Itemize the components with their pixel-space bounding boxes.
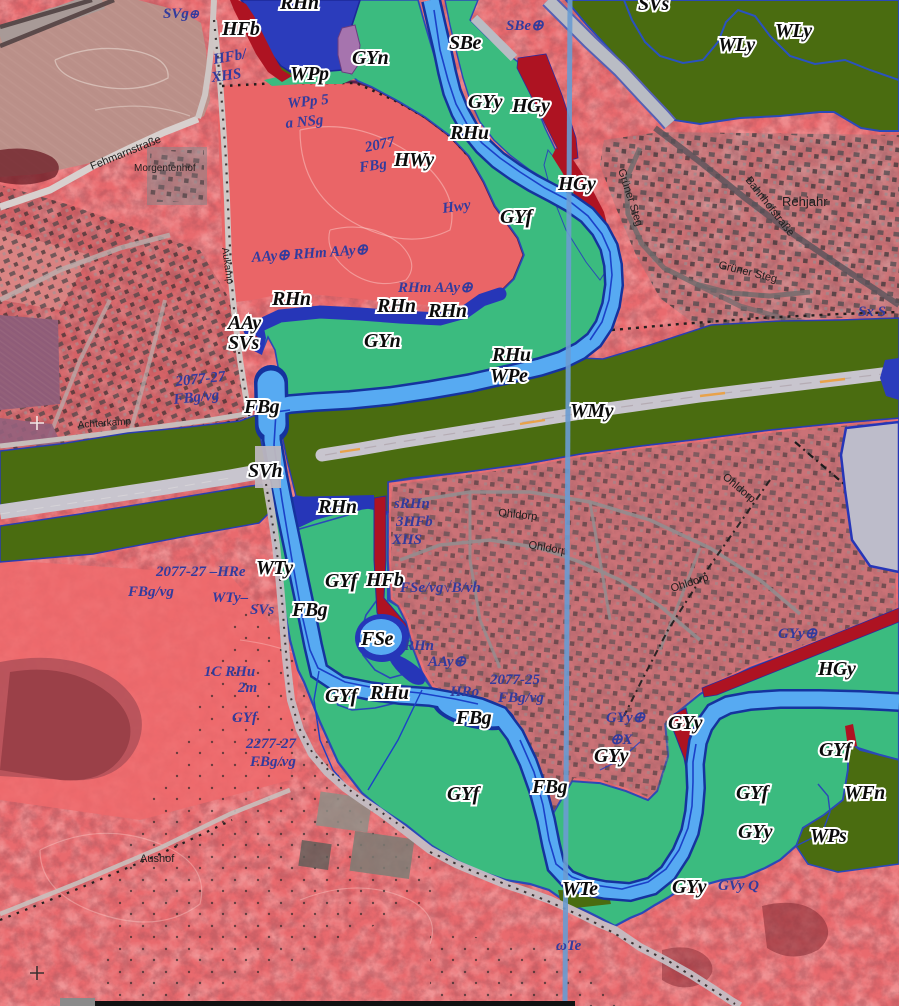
svg-text:WPs: WPs <box>810 825 847 847</box>
svg-text:Rehjahr: Rehjahr <box>782 194 828 209</box>
svg-text:WMy: WMy <box>570 400 614 422</box>
svg-text:RHn: RHn <box>403 638 434 654</box>
svg-text:GYy⊕: GYy⊕ <box>606 710 646 726</box>
svg-text:GYf: GYf <box>500 206 535 228</box>
svg-text:GYf: GYf <box>232 710 259 726</box>
svg-text:GYf: GYf <box>325 685 360 707</box>
svg-text:HGy: HGy <box>511 95 550 117</box>
svg-text:GYy: GYy <box>468 91 503 113</box>
svg-text:GYy⊕: GYy⊕ <box>778 626 818 642</box>
svg-text:HFb: HFb <box>365 569 404 591</box>
svg-text:SBe: SBe <box>449 32 481 54</box>
svg-text:SVg⊕: SVg⊕ <box>163 6 200 22</box>
svg-text:FSe: FSe <box>360 628 393 650</box>
svg-text:HWy: HWy <box>393 149 434 171</box>
svg-text:GYy: GYy <box>594 745 629 767</box>
svg-text:WTe: WTe <box>562 878 598 900</box>
svg-text:RHn: RHn <box>317 496 357 518</box>
svg-text:GYf: GYf <box>325 570 360 592</box>
svg-text:1C RHu: 1C RHu <box>204 664 255 680</box>
svg-text:sRHn: sRHn <box>393 496 430 512</box>
svg-text:HFb: HFb <box>221 18 260 40</box>
svg-text:RHm AAy⊕: RHm AAy⊕ <box>397 280 473 296</box>
svg-text:2077-27 ‒HRe: 2077-27 ‒HRe <box>155 564 246 580</box>
svg-text:SVs: SVs <box>228 332 259 354</box>
svg-text:RHn: RHn <box>279 0 319 14</box>
svg-text:⊕X: ⊕X <box>610 732 634 748</box>
svg-text:HGy: HGy <box>817 658 856 680</box>
svg-text:WFn: WFn <box>844 782 885 804</box>
svg-text:WPe: WPe <box>490 365 528 387</box>
svg-text:FBg/vg: FBg/vg <box>497 690 544 706</box>
svg-text:3HFb: 3HFb <box>395 514 433 530</box>
svg-text:ωTe: ωTe <box>556 938 582 954</box>
svg-text:SVh: SVh <box>248 460 282 482</box>
svg-text:2m: 2m <box>237 680 257 696</box>
svg-text:RHn: RHn <box>376 295 416 317</box>
svg-text:FSe/vg√B/vh: FSe/vg√B/vh <box>399 580 481 596</box>
svg-text:SVs: SVs <box>250 602 274 618</box>
svg-text:2077-25: 2077-25 <box>489 672 540 688</box>
svg-text:FBg: FBg <box>455 707 492 729</box>
svg-text:Sx S: Sx S <box>858 304 886 320</box>
svg-text:WPp: WPp <box>290 63 329 85</box>
svg-text:FBg: FBg <box>243 396 280 418</box>
svg-text:XHS: XHS <box>391 532 422 548</box>
svg-text:HRo: HRo <box>449 684 479 700</box>
svg-text:AAy⊕: AAy⊕ <box>427 654 467 670</box>
svg-text:FBg/vg: FBg/vg <box>249 754 296 770</box>
svg-text:Aushof: Aushof <box>140 853 175 865</box>
svg-text:GYf: GYf <box>736 782 771 804</box>
svg-text:FBg: FBg <box>531 776 568 798</box>
svg-text:FBg: FBg <box>291 599 328 621</box>
svg-text:GYn: GYn <box>352 47 389 69</box>
svg-text:WLy: WLy <box>718 34 755 56</box>
svg-text:RHu: RHu <box>449 122 489 144</box>
svg-text:HGy: HGy <box>557 173 596 195</box>
svg-text:AAy: AAy <box>226 312 261 334</box>
svg-text:GYf: GYf <box>447 783 482 805</box>
svg-text:FBg/vg: FBg/vg <box>127 584 174 600</box>
svg-text:WTy‒: WTy‒ <box>212 590 249 606</box>
svg-text:GYy: GYy <box>672 876 707 898</box>
svg-text:2277-27: 2277-27 <box>245 736 296 752</box>
svg-text:RHn: RHn <box>427 300 467 322</box>
svg-text:RHu: RHu <box>491 344 531 366</box>
svg-text:WLy: WLy <box>775 20 812 42</box>
svg-text:GVy Q: GVy Q <box>718 878 759 894</box>
svg-text:SBe⊕: SBe⊕ <box>506 18 544 34</box>
svg-text:RHu: RHu <box>369 682 409 704</box>
svg-text:WTy: WTy <box>256 557 293 579</box>
svg-text:GYn: GYn <box>364 330 401 352</box>
svg-text:GYf: GYf <box>819 739 854 761</box>
svg-text:SVs: SVs <box>638 0 669 15</box>
svg-text:RHn: RHn <box>271 288 311 310</box>
svg-text:GYy: GYy <box>668 712 703 734</box>
svg-text:Morgentenhof: Morgentenhof <box>134 163 196 174</box>
svg-text:GYy: GYy <box>738 821 773 843</box>
